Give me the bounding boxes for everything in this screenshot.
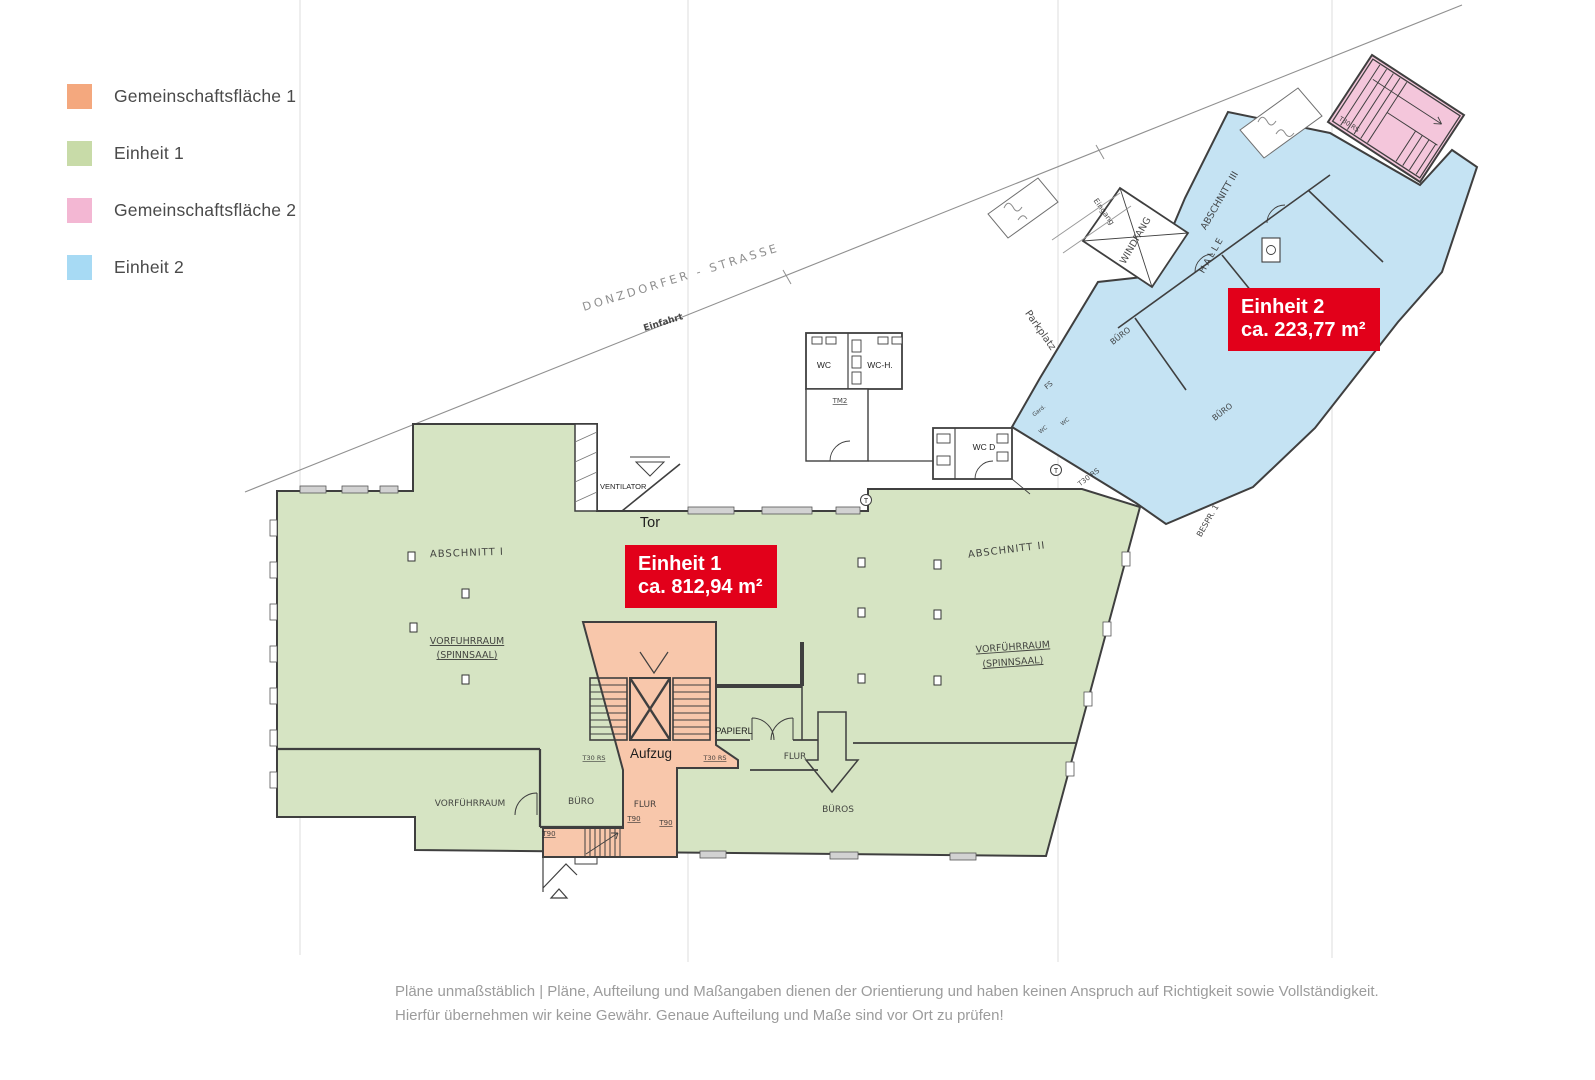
legend-label: Gemeinschaftsfläche 2 (114, 200, 296, 221)
legend-swatch-einheit-1 (67, 141, 92, 166)
label-tm2: TM2 (832, 397, 848, 405)
legend-label: Einheit 1 (114, 143, 184, 164)
legend-label: Gemeinschaftsfläche 1 (114, 86, 296, 107)
legend-swatch-einheit-2 (67, 255, 92, 280)
label-ventilator: VENTILATOR (600, 482, 647, 491)
label-vorfuehrraum-1: VORFÜHRRAUM (430, 636, 504, 647)
unit-badge-area: ca. 812,94 m² (638, 576, 763, 599)
disclaimer: Pläne unmaßstäblich | Pläne, Aufteilung … (395, 980, 1379, 1027)
label-t90-3: T90 (658, 819, 672, 827)
label-tor: Tor (640, 515, 660, 531)
label-flur-1: FLUR (634, 800, 657, 810)
label-wc-d: WC D (973, 442, 996, 452)
unit-badge-name: Einheit 1 (638, 553, 763, 576)
disclaimer-line-2: Hierfür übernehmen wir keine Gewähr. Gen… (395, 1004, 1379, 1028)
label-t-circle-2: T (1054, 468, 1059, 475)
label-spinnsaal-1: (SPINNSAAL) (437, 650, 498, 661)
unit-badge-area: ca. 223,77 m² (1241, 319, 1366, 342)
label-parkplatz: Parkplatz (1022, 309, 1057, 353)
legend: Gemeinschaftsfläche 1 Einheit 1 Gemeinsc… (67, 84, 296, 312)
unit-badge-einheit-1: Einheit 1 ca. 812,94 m² (625, 545, 777, 608)
label-buero-1: BÜRO (568, 796, 594, 807)
label-t30rs-2: T30 RS (703, 754, 727, 762)
label-t90-1: T90 (541, 830, 555, 838)
legend-item-gemeinschaft-2: Gemeinschaftsfläche 2 (67, 198, 296, 223)
label-t-circle-1: T (864, 498, 869, 505)
legend-swatch-gemeinschaft-2 (67, 198, 92, 223)
label-papierl: PAPIERL (715, 726, 752, 736)
legend-swatch-gemeinschaft-1 (67, 84, 92, 109)
unit-badge-name: Einheit 2 (1241, 296, 1366, 319)
label-t30rs-1: T30 RS (582, 754, 606, 762)
driveway-label: Einfahrt (642, 312, 685, 334)
label-wc-1: WC (817, 360, 831, 370)
label-t90-2: T90 (626, 815, 640, 823)
floorplan-page: DONZDORFER - STRASSE Einfahrt (0, 0, 1595, 1080)
label-flur-2: FLUR (784, 752, 807, 762)
unit-badge-einheit-2: Einheit 2 ca. 223,77 m² (1228, 288, 1380, 351)
legend-item-einheit-1: Einheit 1 (67, 141, 296, 166)
label-aufzug: Aufzug (630, 746, 672, 761)
label-bueros: BÜROS (822, 804, 854, 815)
street-name: DONZDORFER - STRASSE (581, 240, 781, 313)
label-vorfuehrraum-3: VORFÜHRRAUM (435, 798, 506, 809)
label-wc-h: WC-H. (867, 360, 893, 370)
ventilator-shaft (575, 424, 597, 511)
entrance-canopy (543, 857, 597, 898)
legend-label: Einheit 2 (114, 257, 184, 278)
legend-item-gemeinschaft-1: Gemeinschaftsfläche 1 (67, 84, 296, 109)
disclaimer-line-1: Pläne unmaßstäblich | Pläne, Aufteilung … (395, 980, 1379, 1004)
legend-item-einheit-2: Einheit 2 (67, 255, 296, 280)
